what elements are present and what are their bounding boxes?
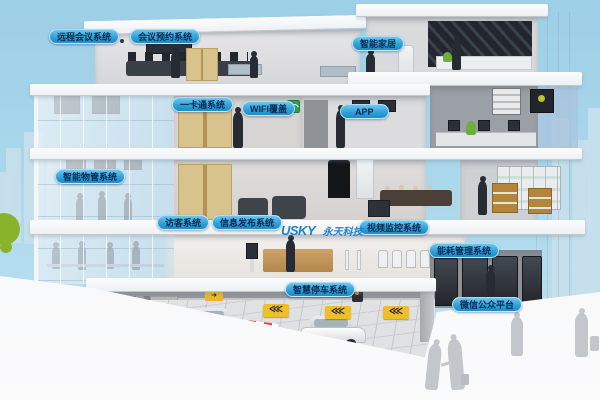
elevator-doors: [186, 48, 218, 81]
label-smart-home: 智能家居: [352, 36, 404, 51]
glass-curtain-wall: [34, 88, 174, 284]
ac-unit: [356, 157, 374, 199]
info-kiosk: [246, 243, 258, 259]
monitor: [478, 120, 490, 131]
car-windshield: [314, 319, 348, 327]
roof-slab: [356, 4, 548, 17]
reception-desk: [263, 249, 333, 272]
turnstile-gate: [378, 250, 388, 268]
person-silhouette: [486, 270, 495, 298]
plant: [443, 52, 452, 62]
stacked-crates: [492, 183, 518, 213]
plant: [466, 121, 476, 135]
label-visitor: 访客系统: [157, 215, 209, 230]
tv-cart: [368, 200, 390, 217]
chevron-sign-icon: ⋘: [325, 306, 351, 319]
logo-brand: USKY: [281, 223, 315, 238]
person-silhouette: [171, 52, 180, 78]
doorway: [304, 100, 328, 148]
ceiling-lamp: [120, 39, 124, 43]
person-silhouette: [575, 313, 588, 357]
workstation-desks: [436, 132, 536, 146]
briefcase: [461, 374, 469, 385]
smart-building-infographic: ➜ ⋘ ⋘ ⋘ 远程会议系统 会: [0, 0, 600, 400]
person-silhouette: [250, 56, 258, 78]
chart-dot: [538, 95, 545, 102]
luggage: [590, 336, 599, 351]
label-meeting-reservation: 会议预约系统: [130, 29, 200, 44]
meeting-table: [380, 190, 452, 206]
chevron-sign-icon: ⋘: [383, 306, 409, 319]
label-remote-conference: 远程会议系统: [49, 29, 119, 44]
label-info-publishing: 信息发布系统: [212, 215, 282, 230]
direction-sign: ➜: [205, 291, 223, 301]
company-logo: USKY 永天科技: [281, 222, 363, 240]
label-energy-management: 能耗管理系统: [429, 243, 499, 258]
display-board-light: [492, 88, 521, 115]
kiosk-stand: [250, 259, 254, 272]
server-rack: [522, 256, 542, 306]
skyline-building: [588, 108, 600, 303]
label-smart-parking: 智慧停车系统: [285, 282, 355, 297]
chevron-sign-icon: ⋘: [263, 304, 289, 317]
person-silhouette: [478, 181, 487, 215]
floor-slab: [86, 278, 436, 292]
monitor: [448, 120, 460, 131]
label-app: APP: [340, 104, 389, 119]
stanchion: [357, 250, 361, 270]
label-wechat-platform: 微信公众平台: [452, 297, 522, 312]
label-video-surveillance: 视频监控系统: [359, 220, 429, 235]
stanchion: [345, 250, 349, 270]
floor-slab: [30, 148, 582, 160]
label-one-card: 一卡通系统: [172, 97, 233, 112]
stacked-crates: [528, 188, 552, 214]
turnstile-gate: [392, 250, 402, 268]
floor-slab: [30, 84, 430, 96]
person-silhouette: [452, 40, 461, 70]
logo-company-name: 永天科技: [323, 227, 363, 238]
elevator-doors: [178, 164, 232, 220]
label-wifi-coverage: WIFI覆盖: [242, 101, 295, 116]
person-silhouette: [286, 240, 295, 272]
tree-bush: [0, 241, 12, 253]
fridge: [328, 160, 350, 198]
monitor: [508, 120, 520, 131]
turnstile-gate: [406, 250, 416, 268]
person-silhouette: [511, 317, 523, 356]
label-property-management: 智能物管系统: [55, 169, 125, 184]
person-silhouette: [233, 112, 243, 148]
